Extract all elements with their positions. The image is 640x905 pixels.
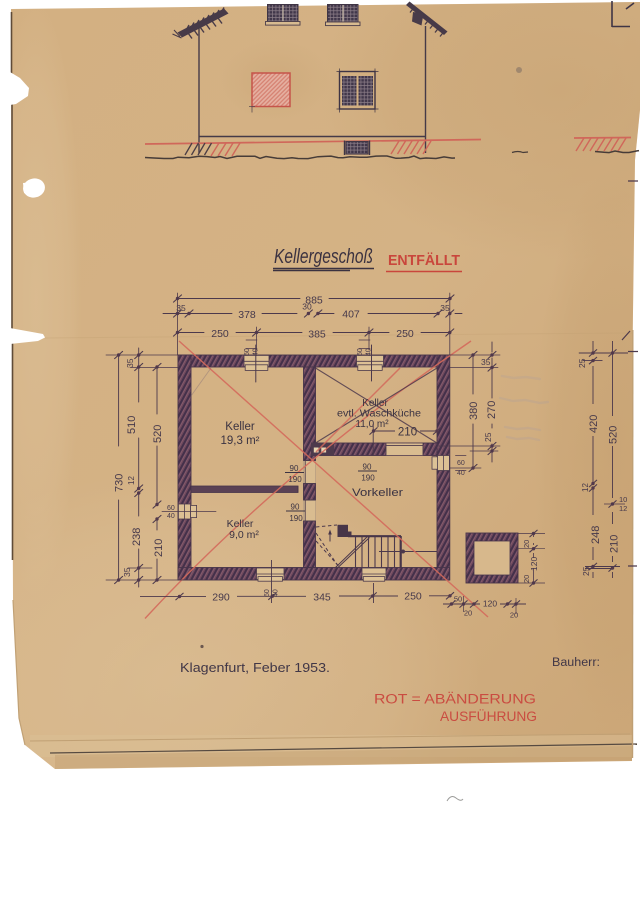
svg-text:250: 250	[211, 328, 229, 340]
svg-text:60: 60	[167, 505, 175, 512]
svg-text:90: 90	[290, 464, 299, 473]
svg-text:ROT = ABÄNDERUNG: ROT = ABÄNDERUNG	[374, 692, 536, 707]
svg-text:210: 210	[609, 535, 621, 553]
svg-text:90: 90	[291, 503, 300, 512]
svg-text:Keller: Keller	[362, 398, 388, 409]
svg-text:25: 25	[577, 358, 587, 368]
svg-text:290: 290	[212, 592, 230, 604]
svg-text:19,3 m²: 19,3 m²	[221, 435, 260, 447]
svg-text:378: 378	[238, 309, 256, 321]
svg-text:50: 50	[454, 595, 462, 604]
svg-text:190: 190	[288, 475, 302, 484]
svg-text:20: 20	[522, 540, 531, 548]
svg-text:250: 250	[404, 591, 422, 603]
svg-text:evtl. Waschküche: evtl. Waschküche	[337, 409, 421, 420]
svg-text:60: 60	[457, 460, 465, 467]
svg-text:190: 190	[361, 474, 375, 483]
svg-text:ENTFÄLLT: ENTFÄLLT	[388, 252, 460, 269]
svg-text:250: 250	[396, 328, 414, 340]
svg-text:385: 385	[308, 329, 326, 341]
svg-text:40: 40	[273, 589, 280, 597]
svg-text:60: 60	[244, 348, 251, 356]
svg-text:35: 35	[440, 303, 450, 313]
svg-text:248: 248	[590, 526, 602, 544]
svg-text:40: 40	[457, 470, 465, 477]
svg-text:25: 25	[581, 566, 591, 576]
svg-text:25: 25	[483, 432, 493, 442]
svg-text:12: 12	[127, 476, 136, 485]
svg-text:60: 60	[264, 589, 271, 597]
svg-text:380: 380	[468, 402, 480, 420]
svg-text:9,0 m²: 9,0 m²	[229, 529, 259, 541]
svg-text:Kellergeschoß: Kellergeschoß	[274, 246, 373, 268]
svg-text:120: 120	[483, 599, 497, 609]
svg-text:730: 730	[114, 474, 126, 492]
svg-text:270: 270	[486, 401, 498, 419]
svg-text:11,0 m²: 11,0 m²	[355, 419, 389, 430]
svg-text:35: 35	[481, 357, 491, 367]
svg-text:520: 520	[152, 425, 164, 443]
svg-text:12: 12	[581, 483, 590, 492]
svg-text:90: 90	[363, 463, 372, 472]
svg-text:520: 520	[608, 426, 620, 444]
svg-text:20: 20	[522, 575, 531, 583]
svg-text:210: 210	[153, 539, 165, 557]
svg-text:35: 35	[125, 358, 135, 368]
svg-text:60: 60	[357, 348, 364, 356]
svg-text:238: 238	[131, 528, 143, 546]
svg-text:420: 420	[588, 415, 600, 433]
svg-text:Bauherr:: Bauherr:	[552, 657, 600, 669]
svg-text:30: 30	[302, 302, 312, 312]
svg-text:210: 210	[398, 427, 417, 439]
svg-text:Vorkeller: Vorkeller	[352, 487, 403, 499]
svg-text:20: 20	[464, 609, 472, 618]
svg-text:10: 10	[619, 495, 627, 504]
svg-text:510: 510	[126, 416, 138, 434]
svg-text:120: 120	[529, 557, 539, 571]
svg-text:Klagenfurt, Feber 1953.: Klagenfurt, Feber 1953.	[180, 661, 330, 675]
svg-text:35: 35	[122, 567, 132, 577]
svg-text:12: 12	[619, 504, 627, 513]
svg-text:40: 40	[167, 513, 175, 520]
svg-text:AUSFÜHRUNG: AUSFÜHRUNG	[440, 709, 537, 724]
svg-text:407: 407	[342, 309, 360, 321]
svg-text:Keller: Keller	[225, 421, 255, 433]
svg-text:190: 190	[289, 514, 303, 523]
svg-text:20: 20	[510, 611, 518, 620]
svg-text:345: 345	[313, 592, 331, 604]
